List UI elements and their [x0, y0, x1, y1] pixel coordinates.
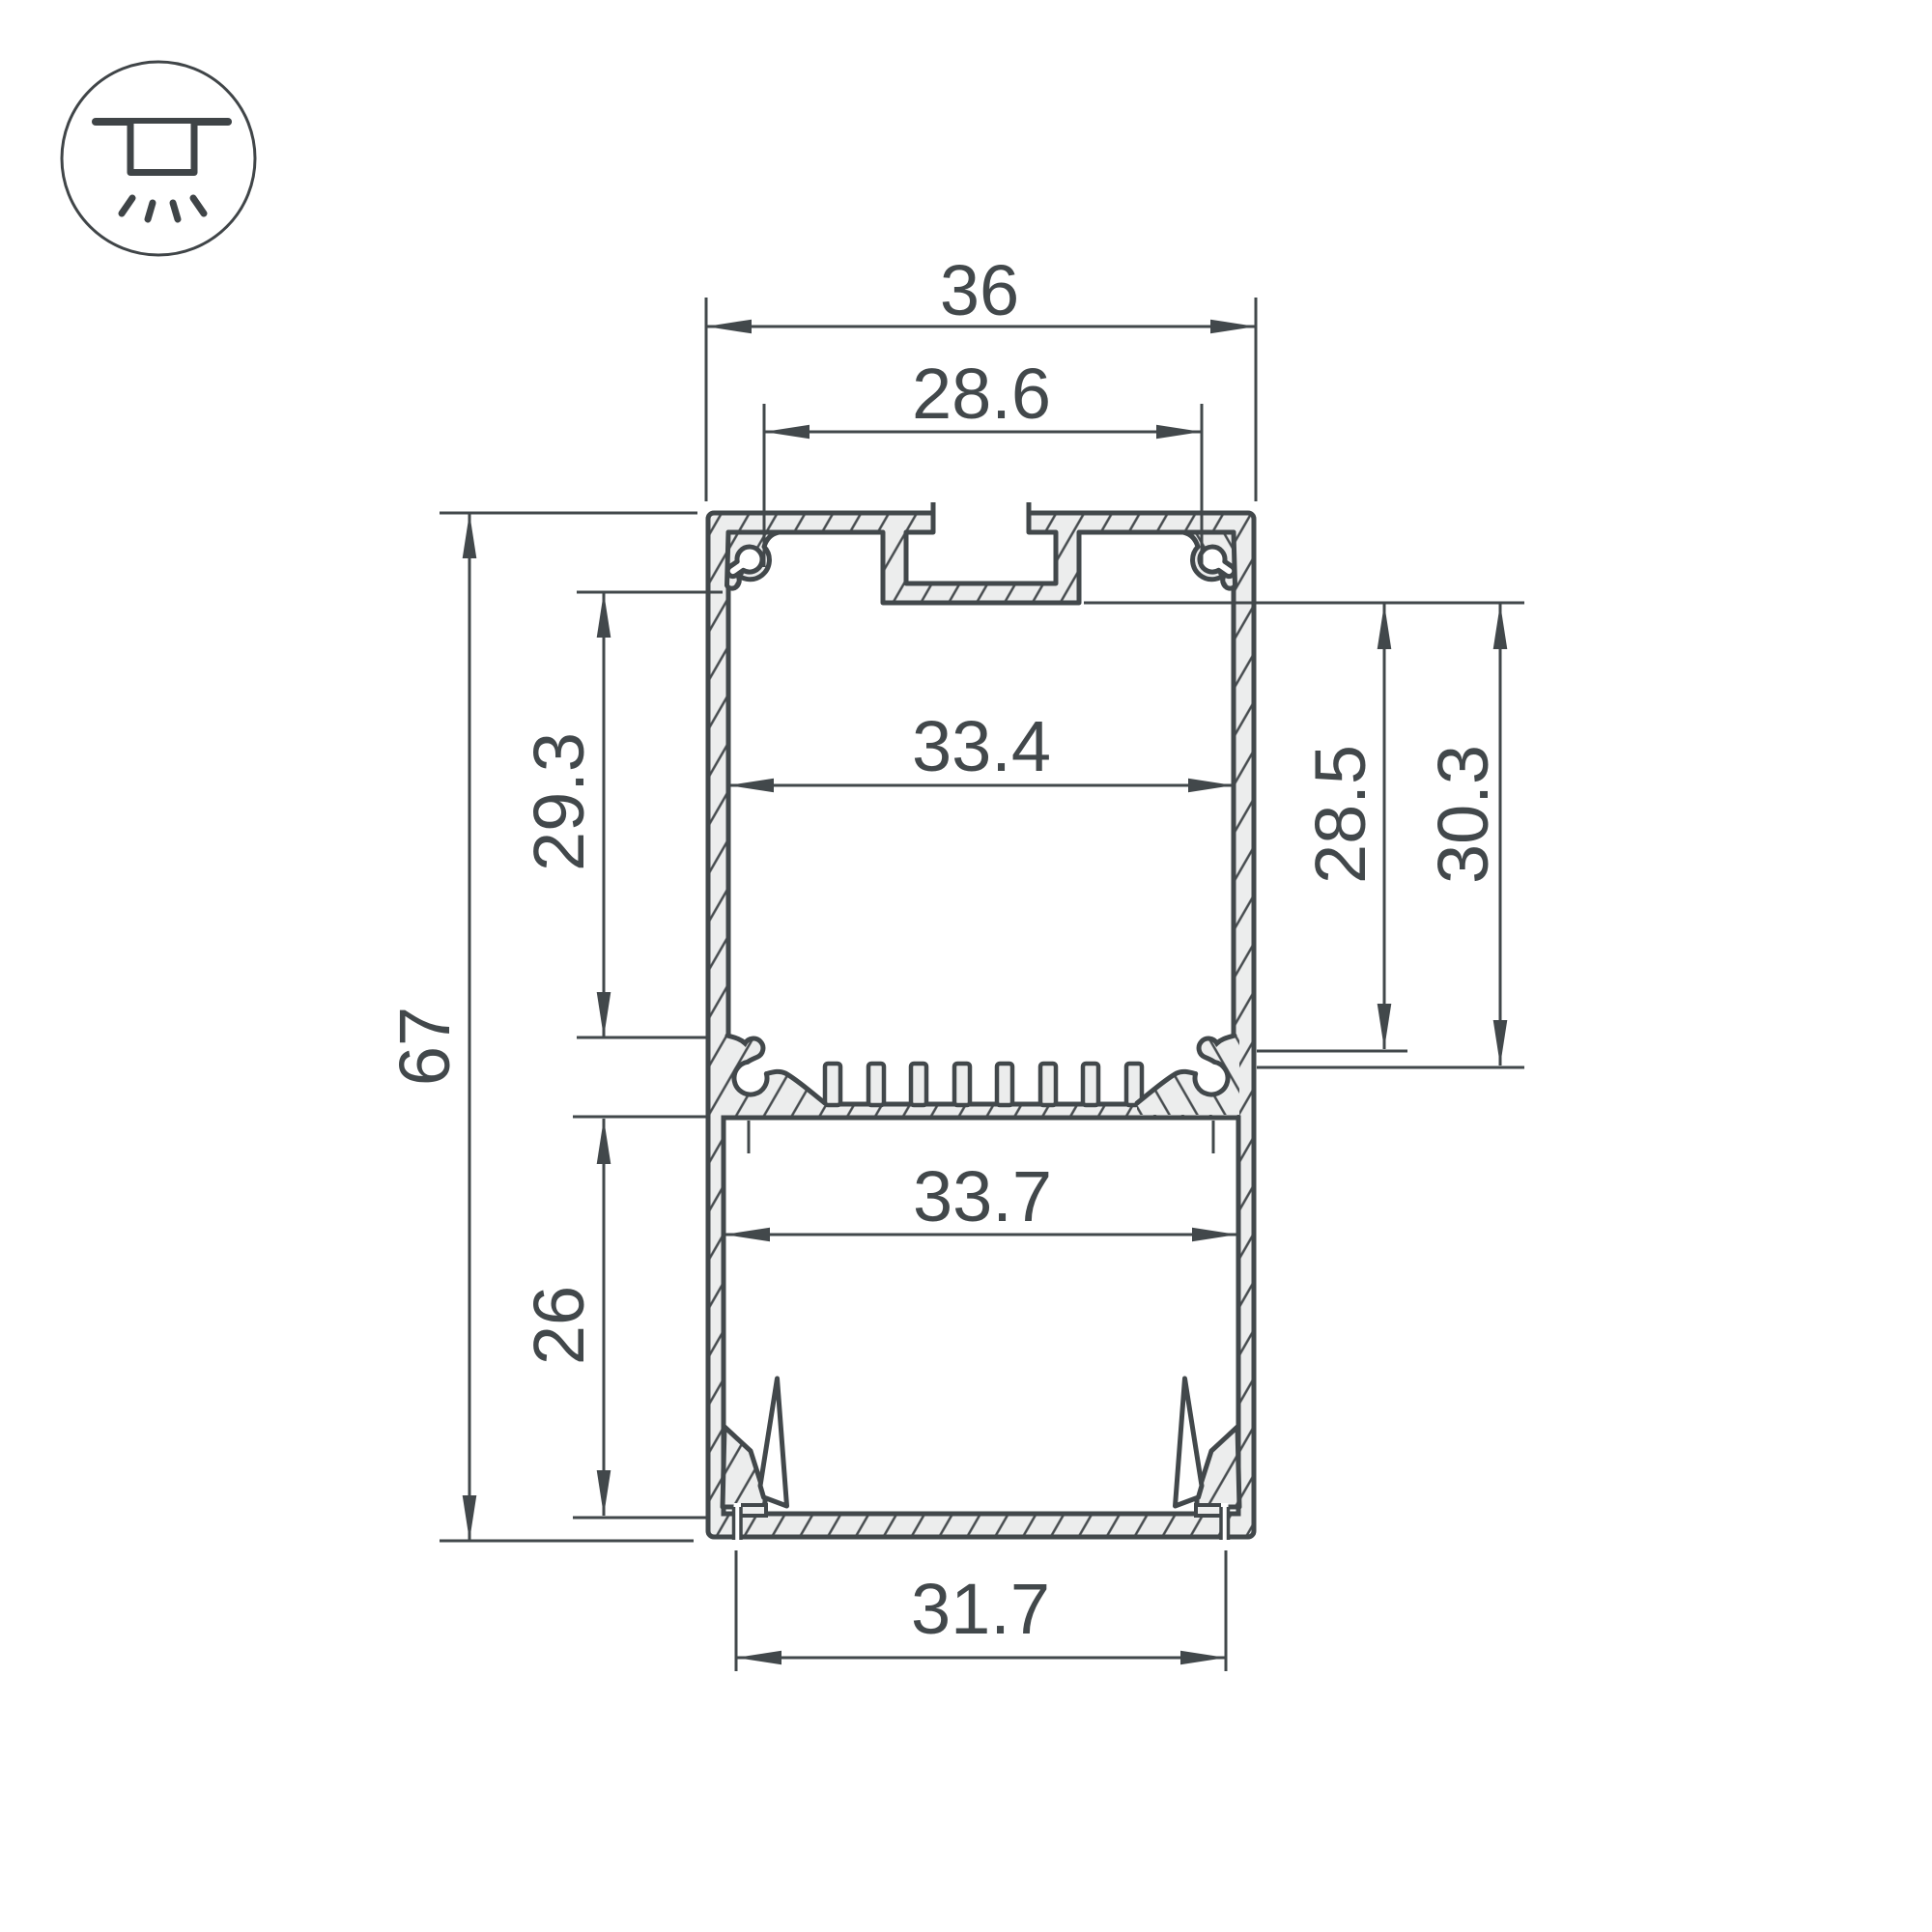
svg-text:33.4: 33.4	[912, 706, 1051, 786]
svg-text:67: 67	[384, 1007, 465, 1086]
svg-text:29.3: 29.3	[519, 732, 599, 871]
svg-text:31.7: 31.7	[911, 1569, 1050, 1649]
svg-text:28.5: 28.5	[1300, 745, 1380, 884]
svg-text:33.7: 33.7	[913, 1156, 1052, 1236]
svg-text:26: 26	[519, 1286, 599, 1365]
svg-text:30.3: 30.3	[1423, 745, 1503, 884]
svg-text:36: 36	[940, 250, 1019, 330]
svg-text:28.6: 28.6	[912, 354, 1051, 434]
